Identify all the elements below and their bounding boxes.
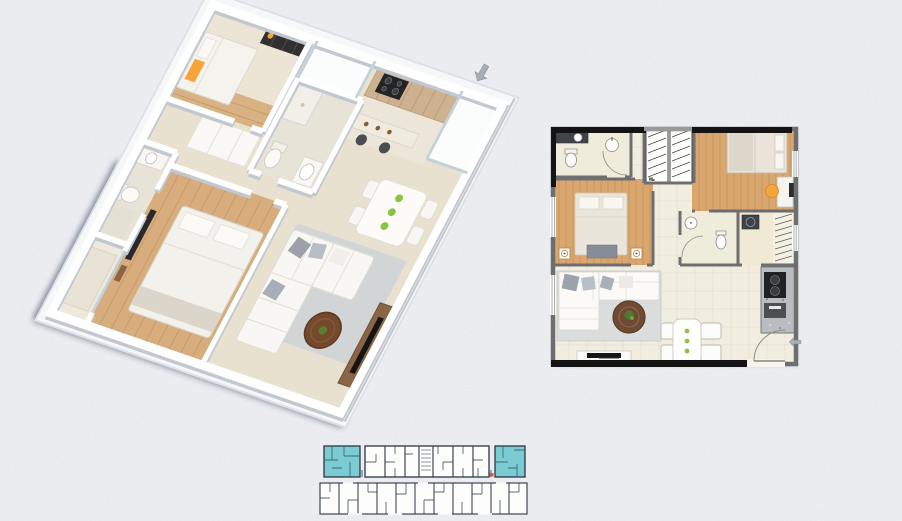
orange-chair [766,185,779,198]
keyplan-bottom-row [320,483,527,514]
green-plate [685,339,690,344]
bed-bench [587,245,617,258]
floor-plan-2d [550,127,798,367]
coffee-table-2d [613,301,645,333]
closet-right [670,129,692,183]
nightstand-right [631,248,642,259]
keyplan-top-row [324,446,525,477]
green-plate [685,329,690,334]
nightstand-left [559,248,570,259]
green-plate [685,349,690,354]
highlighted-unit-right [495,446,525,477]
kitchen-2d [761,267,796,333]
closet-left [646,129,668,183]
floor-plan-composite [0,0,902,521]
highlighted-unit-left [324,446,360,477]
location-marker [490,473,494,477]
bed2-2d [727,131,787,173]
kitchen-sink-2d [764,303,786,318]
